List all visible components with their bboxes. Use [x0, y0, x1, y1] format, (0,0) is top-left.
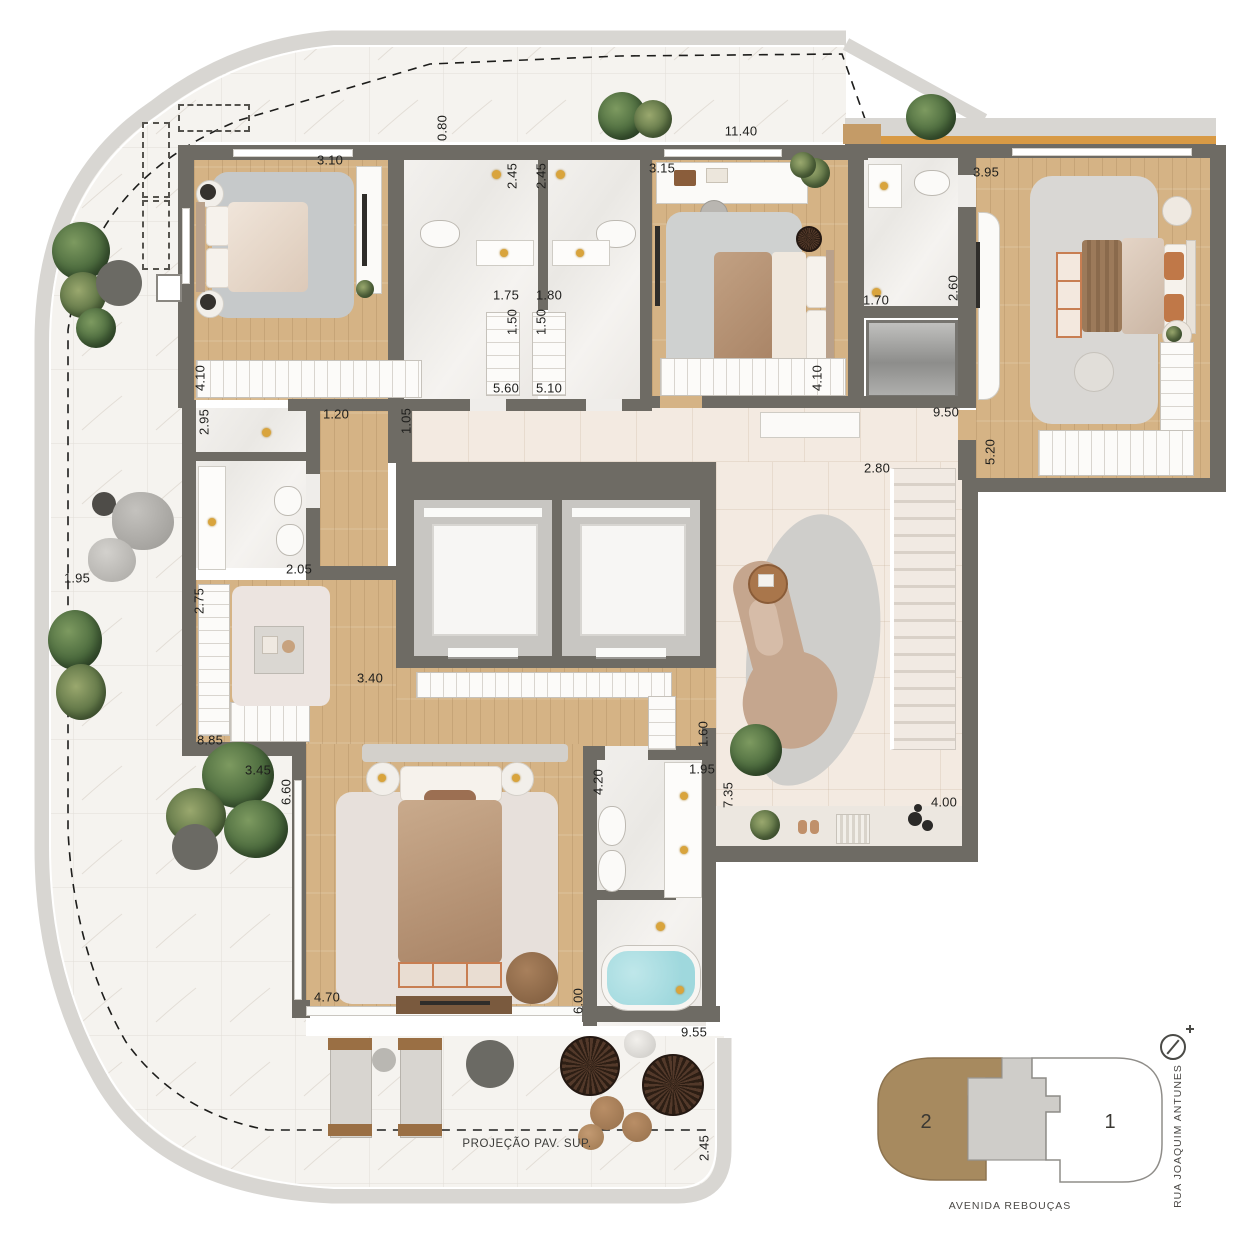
- closet-suite-2: [1038, 430, 1194, 476]
- master-duvet: [398, 800, 502, 964]
- toilet-bath-4: [274, 486, 302, 516]
- terrace-table-1: [96, 260, 142, 306]
- shower-bath-1: [492, 170, 501, 179]
- suite2-console: [978, 212, 1000, 400]
- door-master-bath: [605, 746, 648, 760]
- keyplan-unit-2-label: 2: [920, 1111, 931, 1133]
- plant-bedroom2-corner: [790, 152, 816, 178]
- slipper-a: [798, 820, 807, 834]
- dimension-label: 1.95: [64, 571, 90, 586]
- dimension-label: 0.80: [435, 115, 450, 141]
- tree-topleft-c: [76, 308, 116, 348]
- faucet-bath-2: [576, 249, 584, 257]
- dimension-label: 2.05: [286, 562, 312, 577]
- master-lamp-b: [512, 774, 520, 782]
- wall-bath-partition: [586, 890, 676, 900]
- dimension-label: 6.00: [571, 988, 586, 1014]
- wall-bath2-bed2: [640, 145, 652, 408]
- dimension-label: 4.20: [591, 769, 606, 795]
- master-bench: [398, 962, 502, 988]
- vanity-master-bath: [664, 762, 702, 898]
- dimension-label: 4.00: [931, 795, 957, 810]
- balcony-rail: [845, 136, 1216, 144]
- dimension-label: 6.60: [279, 779, 294, 805]
- dimension-label: 1.05: [399, 408, 414, 434]
- plant-suite-2: [1166, 326, 1182, 342]
- door-suite-2: [958, 410, 976, 440]
- desk-books: [706, 168, 728, 183]
- dimension-label: 1.60: [696, 721, 711, 747]
- elevator-1-door: [448, 648, 518, 659]
- balcony-strip: [845, 118, 1216, 138]
- plant-bedroom-1: [356, 280, 374, 298]
- wicker-chair-2: [642, 1054, 704, 1116]
- dimension-label: 1.50: [505, 309, 520, 335]
- dimension-label: 4.10: [810, 365, 825, 391]
- dimension-label: 11.40: [725, 124, 758, 139]
- terrace-table-2: [172, 824, 218, 870]
- shower-bath-2: [556, 170, 565, 179]
- elevator-2-bar: [572, 508, 690, 517]
- pergola-projection-2: [142, 122, 170, 198]
- bathtub: [602, 946, 700, 1010]
- tree-top-b: [634, 100, 672, 138]
- closet-suite-2-side: [1160, 342, 1194, 434]
- dimension-label: 4.10: [193, 365, 208, 391]
- bed2-sheet: [772, 252, 806, 364]
- suite2-cushion-a: [1164, 252, 1184, 280]
- floor-hall: [412, 408, 960, 462]
- suite2-ottoman: [1074, 352, 1114, 392]
- dimension-label: 3.95: [973, 165, 999, 180]
- bed2-pillow-a: [806, 256, 828, 308]
- lounger-2: [400, 1038, 442, 1138]
- shower-bath-4: [262, 428, 271, 437]
- dimension-label: 3.45: [245, 763, 271, 778]
- faucet-master-a: [680, 792, 688, 800]
- wall-suite-entry: [958, 440, 976, 480]
- door-laundry: [306, 474, 320, 508]
- wall-right-outer: [1210, 145, 1226, 492]
- slipper-b: [810, 820, 819, 834]
- wall-laundry-divider: [196, 452, 308, 461]
- tv-suite-2: [976, 242, 980, 308]
- keyplan-unit-1-label: 1: [1104, 1111, 1115, 1133]
- pebble-a: [908, 812, 922, 826]
- master-headboard: [362, 744, 568, 762]
- toilet-master: [598, 850, 626, 892]
- plant-living: [730, 724, 782, 776]
- closet-bedroom-1: [196, 360, 422, 398]
- street-label-bottom: AVENIDA REBOUÇAS: [949, 1200, 1072, 1212]
- wall-left-service: [182, 400, 196, 756]
- suite2-cushion-b: [1164, 294, 1184, 322]
- terrace-table-3: [466, 1040, 514, 1088]
- bed1-headboard: [196, 202, 205, 292]
- faucet-bath-3: [880, 182, 888, 190]
- window-suite-2: [1012, 148, 1192, 156]
- floor-corridor-down: [320, 408, 388, 588]
- bush-left-b: [56, 664, 106, 720]
- desk-laptop: [674, 170, 696, 186]
- elevator-1-bar: [424, 508, 542, 517]
- wall-living-right: [962, 478, 978, 862]
- hall-wardrobe: [416, 672, 672, 698]
- wall-living-bottom: [700, 846, 978, 862]
- bed1-pillow-a: [206, 206, 230, 246]
- tv-master: [420, 1001, 490, 1005]
- dimension-label: 8.85: [197, 733, 223, 748]
- pebble-b: [922, 820, 933, 831]
- suite2-headboard: [1186, 240, 1196, 334]
- north-arrow-plus-v: [1189, 1025, 1191, 1033]
- toilet-bath-1: [420, 220, 460, 248]
- dimension-label: 2.80: [864, 461, 890, 476]
- dimension-label: 3.15: [649, 161, 675, 176]
- bed2-duvet: [714, 252, 772, 364]
- bed2-headboard: [826, 250, 834, 366]
- faucet-master-b: [680, 846, 688, 854]
- nightstand-2a: [796, 226, 822, 252]
- tree-topright: [906, 94, 956, 140]
- pouf-b: [622, 1112, 652, 1142]
- dimension-label: 4.70: [314, 990, 340, 1005]
- glass-master-left: [294, 780, 302, 1000]
- wood-deck-nub: [843, 124, 881, 144]
- vase-1b: [200, 294, 216, 310]
- dimension-label: 1.95: [689, 762, 715, 777]
- faucet-bath-1: [500, 249, 508, 257]
- dimension-label: 1.75: [493, 288, 519, 303]
- closet-island-deco: [282, 640, 295, 653]
- shower-master: [656, 922, 665, 931]
- suite2-bed-shelf: [1056, 252, 1082, 338]
- dimension-label: 1.50: [534, 309, 549, 335]
- pebble-c: [914, 804, 922, 812]
- floorplan-canvas: 0.803.102.452.453.1511.403.951.751.801.7…: [0, 0, 1250, 1250]
- lounger-1-head: [328, 1038, 372, 1050]
- tv-bedroom-1: [362, 194, 367, 266]
- dimension-label: 9.55: [681, 1025, 707, 1040]
- lounger-side-table: [372, 1048, 396, 1072]
- stone-stool: [624, 1030, 656, 1058]
- door-bath-1: [470, 399, 506, 411]
- side-table-tray: [758, 574, 774, 587]
- window-bedroom-2: [664, 149, 782, 157]
- tree-mid-c: [224, 800, 288, 858]
- bidet-bath-4: [276, 524, 304, 556]
- dimension-label: 2.45: [534, 163, 549, 189]
- wall-bath3-bottom: [848, 306, 976, 318]
- dimension-label: 2.45: [697, 1135, 712, 1161]
- dimension-label: 7.35: [721, 782, 736, 808]
- stone-small: [88, 538, 136, 582]
- bed1-duvet: [228, 202, 308, 292]
- closet-island-tray: [262, 636, 278, 654]
- window-bedroom-1-side: [182, 208, 190, 284]
- wicker-chair-1: [560, 1036, 620, 1096]
- bed1-pillow-b: [206, 248, 230, 288]
- master-lamp-a: [378, 774, 386, 782]
- living-console: [760, 412, 860, 438]
- hall-wardrobe-return: [648, 696, 676, 750]
- bush-left-a: [48, 610, 102, 670]
- suite2-table-a: [1162, 196, 1192, 226]
- dimension-label: 2.60: [946, 275, 961, 301]
- lounger-1-foot: [328, 1124, 372, 1136]
- door-bath-2: [586, 399, 622, 411]
- wall-suite-bottom: [968, 478, 1216, 492]
- suite2-duvet-b: [1122, 238, 1164, 334]
- wall-niche: [156, 274, 182, 302]
- tub-faucet: [676, 986, 684, 994]
- staircase: [890, 468, 956, 750]
- bed2-pillow-b: [806, 310, 828, 362]
- dimension-label: 1.20: [323, 407, 349, 422]
- faucet-bath-4: [208, 518, 216, 526]
- dimension-label: 1.70: [863, 293, 889, 308]
- master-tv-console: [396, 996, 512, 1014]
- dimension-label: 5.10: [536, 381, 562, 396]
- keyplan: 2 1: [864, 1042, 1174, 1202]
- master-armchair: [506, 952, 558, 1004]
- dimension-label: 5.20: [983, 439, 998, 465]
- dimension-label: 3.40: [357, 671, 383, 686]
- dimension-label: 3.10: [317, 153, 343, 168]
- door-bedroom-2: [660, 396, 702, 408]
- tv-bedroom-2: [655, 226, 660, 306]
- door-mat: [836, 814, 870, 844]
- street-label-side: RUA JOAQUIM ANTUNES: [1172, 1064, 1184, 1208]
- suite2-duvet-a: [1082, 240, 1122, 332]
- lounger-2-head: [398, 1038, 442, 1050]
- bedroom1-tv-unit: [356, 166, 382, 294]
- door-bath-3: [958, 175, 976, 207]
- service-elevator: [866, 320, 958, 398]
- plant-threshold: [750, 810, 780, 840]
- dimension-label: 2.95: [197, 409, 212, 435]
- dimension-label: 1.80: [536, 288, 562, 303]
- wall-bed2-bath3: [848, 145, 864, 408]
- dimension-label: 2.45: [505, 163, 520, 189]
- dimension-label: 5.60: [493, 381, 519, 396]
- vase-1a: [200, 184, 216, 200]
- pergola-projection-1: [178, 104, 250, 132]
- bidet-master: [598, 806, 626, 846]
- elevator-2-door: [596, 648, 666, 659]
- wall-laundry-bottom: [306, 566, 406, 580]
- lounger-2-foot: [398, 1124, 442, 1136]
- elevator-2-floor: [580, 524, 686, 636]
- master-closet-bottom: [230, 702, 310, 742]
- toilet-bath-3: [914, 170, 950, 196]
- projection-caption: PROJEÇÃO PAV. SUP.: [462, 1138, 591, 1150]
- pergola-projection-3: [142, 200, 170, 270]
- lounger-1: [330, 1038, 372, 1138]
- dimension-label: 9.50: [933, 405, 959, 420]
- elevator-1-floor: [432, 524, 538, 636]
- keyplan-unit-1: [1032, 1058, 1162, 1182]
- dimension-label: 2.75: [192, 588, 207, 614]
